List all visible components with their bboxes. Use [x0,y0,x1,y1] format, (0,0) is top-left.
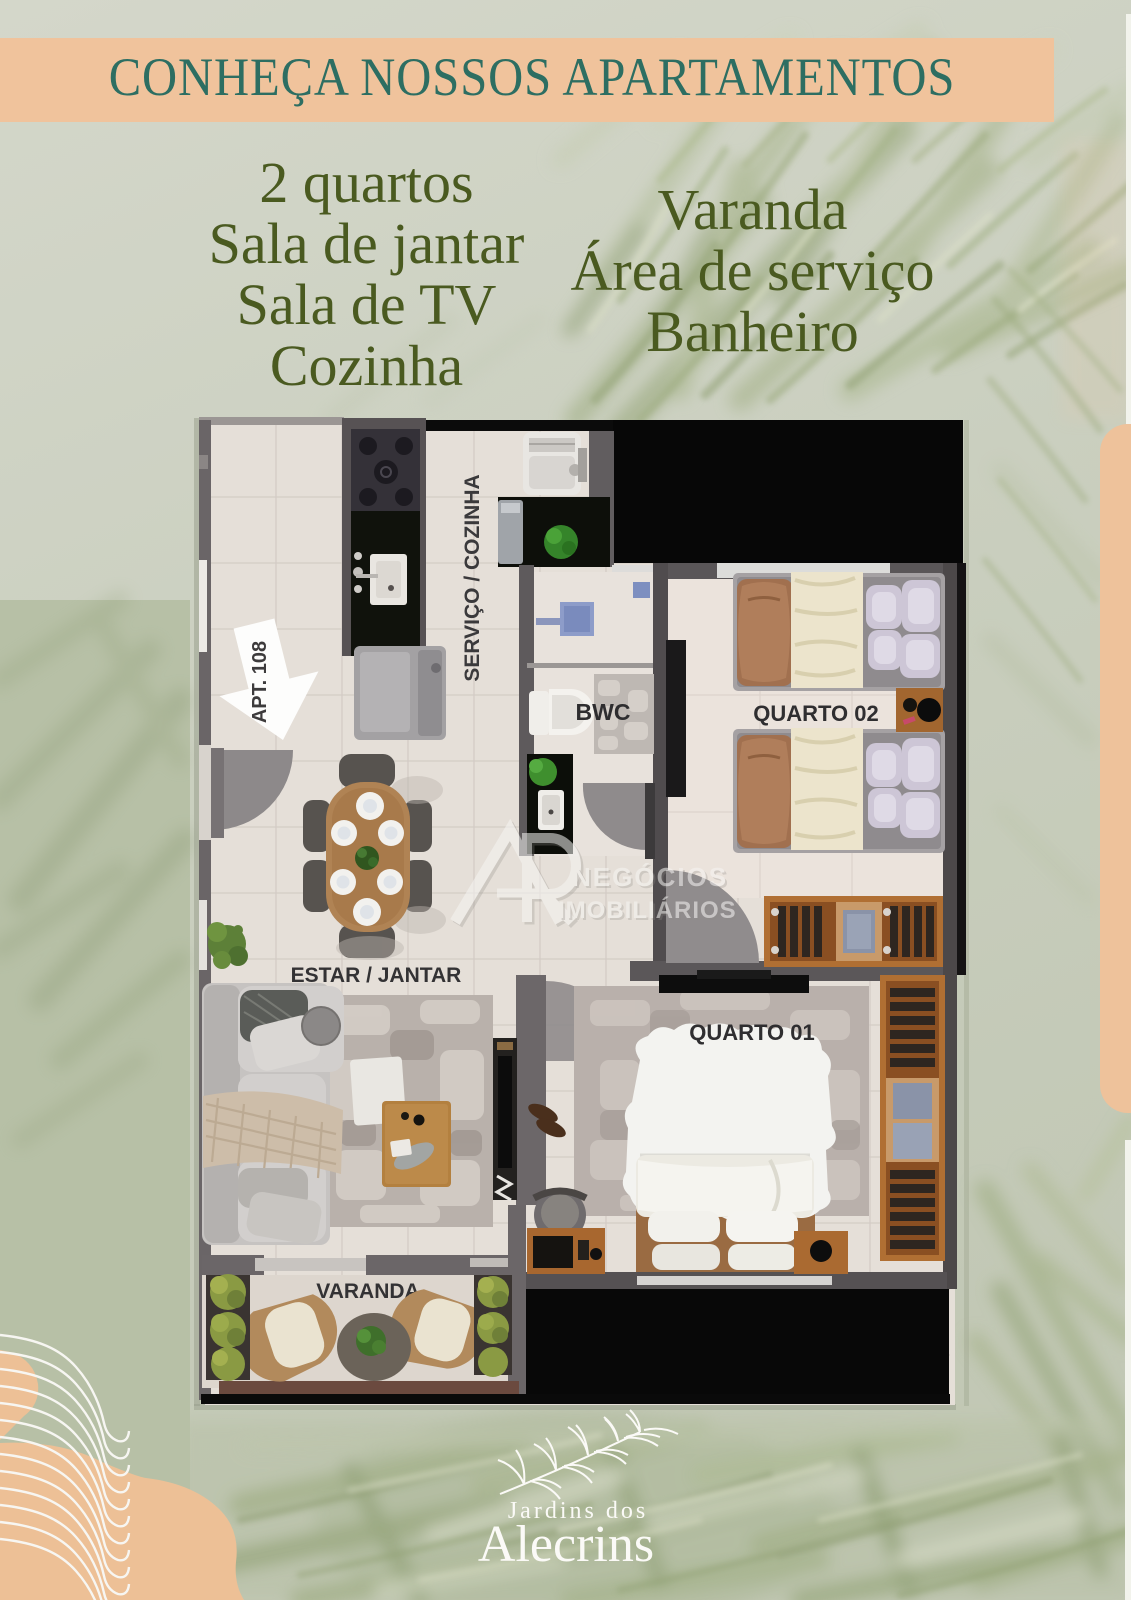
svg-text:Alecrins: Alecrins [478,1516,654,1573]
